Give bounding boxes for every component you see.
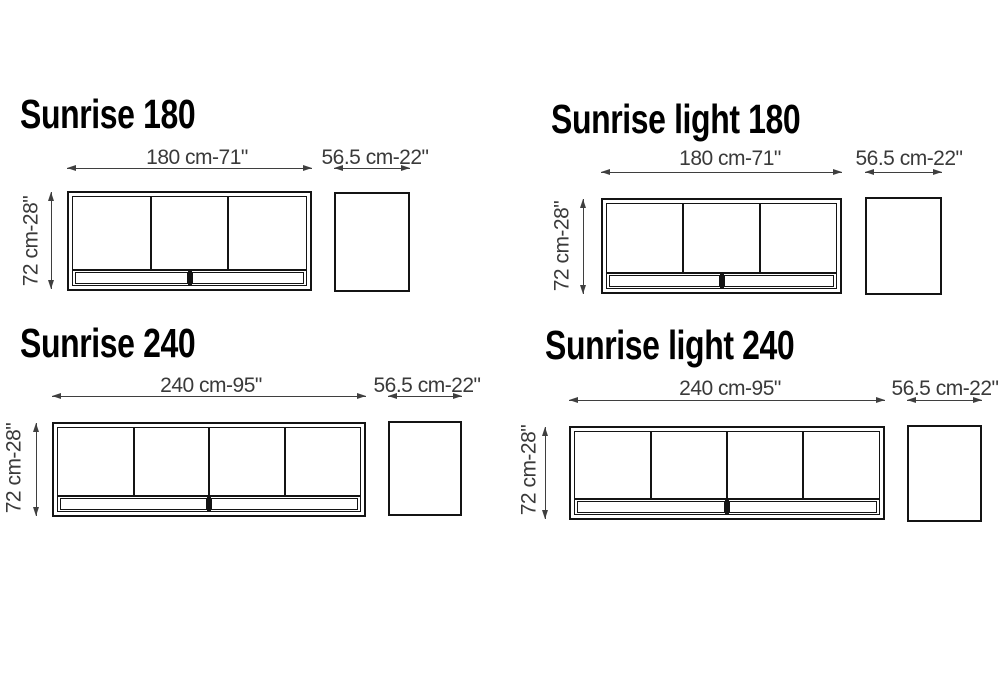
width-dimension-label: 180 cm-71" xyxy=(146,147,248,168)
door-divider xyxy=(682,204,684,272)
depth-dimension-arrow xyxy=(865,172,942,173)
front-view xyxy=(601,198,842,294)
depth-dimension-arrow xyxy=(388,396,462,397)
height-dimension-label: 72 cm-28" xyxy=(552,201,573,292)
door-divider xyxy=(227,197,229,269)
depth-dimension-label: 56.5 cm-22" xyxy=(855,148,962,169)
height-dimension-arrow xyxy=(51,192,52,289)
door-divider xyxy=(150,197,152,269)
side-view xyxy=(388,421,462,516)
base-compartment xyxy=(75,272,188,284)
doors-area xyxy=(575,432,879,498)
door-divider xyxy=(208,428,210,495)
base-compartment xyxy=(211,498,358,510)
front-frame-inner xyxy=(574,431,880,515)
front-frame-inner xyxy=(72,196,307,286)
height-dimension-arrow xyxy=(545,427,546,519)
base-strip xyxy=(58,495,360,511)
front-view xyxy=(569,426,885,520)
doors-area xyxy=(58,428,360,495)
base-strip xyxy=(73,269,306,285)
width-dimension-arrow xyxy=(569,400,885,401)
door-divider xyxy=(133,428,135,495)
front-frame-inner xyxy=(57,427,361,512)
height-dimension-label: 72 cm-28" xyxy=(21,196,42,287)
base-compartment xyxy=(577,501,725,513)
base-strip xyxy=(607,272,836,288)
base-strip xyxy=(575,498,879,514)
height-dimension-label: 72 cm-28" xyxy=(519,425,540,516)
front-frame-inner xyxy=(606,203,837,289)
side-view xyxy=(907,425,982,522)
width-dimension-label: 240 cm-95" xyxy=(679,378,781,399)
variant-title: Sunrise light 180 xyxy=(551,99,800,140)
front-view xyxy=(67,191,312,291)
depth-dimension-arrow xyxy=(907,400,982,401)
base-compartment xyxy=(609,275,720,287)
depth-dimension-label: 56.5 cm-22" xyxy=(891,378,998,399)
doors-area xyxy=(607,204,836,272)
door-divider xyxy=(726,432,728,498)
door-divider xyxy=(650,432,652,498)
width-dimension-label: 240 cm-95" xyxy=(160,375,262,396)
height-dimension-arrow xyxy=(583,199,584,294)
variant-title: Sunrise 180 xyxy=(20,94,195,135)
depth-dimension-arrow xyxy=(334,168,410,169)
base-compartment xyxy=(724,275,835,287)
door-divider xyxy=(759,204,761,272)
front-view xyxy=(52,422,366,517)
width-dimension-arrow xyxy=(67,168,312,169)
variant-title: Sunrise light 240 xyxy=(545,325,794,366)
width-dimension-arrow xyxy=(601,172,842,173)
base-compartment xyxy=(729,501,877,513)
side-view xyxy=(865,197,942,295)
width-dimension-label: 180 cm-71" xyxy=(679,148,781,169)
base-compartment xyxy=(192,272,305,284)
variant-title: Sunrise 240 xyxy=(20,323,195,364)
door-divider xyxy=(802,432,804,498)
width-dimension-arrow xyxy=(52,396,366,397)
door-divider xyxy=(284,428,286,495)
doors-area xyxy=(73,197,306,269)
spec-sheet: Sunrise 180180 cm-71"56.5 cm-22"72 cm-28… xyxy=(0,0,1000,700)
side-view xyxy=(334,192,410,292)
base-compartment xyxy=(60,498,207,510)
height-dimension-arrow xyxy=(36,423,37,516)
height-dimension-label: 72 cm-28" xyxy=(4,423,25,514)
